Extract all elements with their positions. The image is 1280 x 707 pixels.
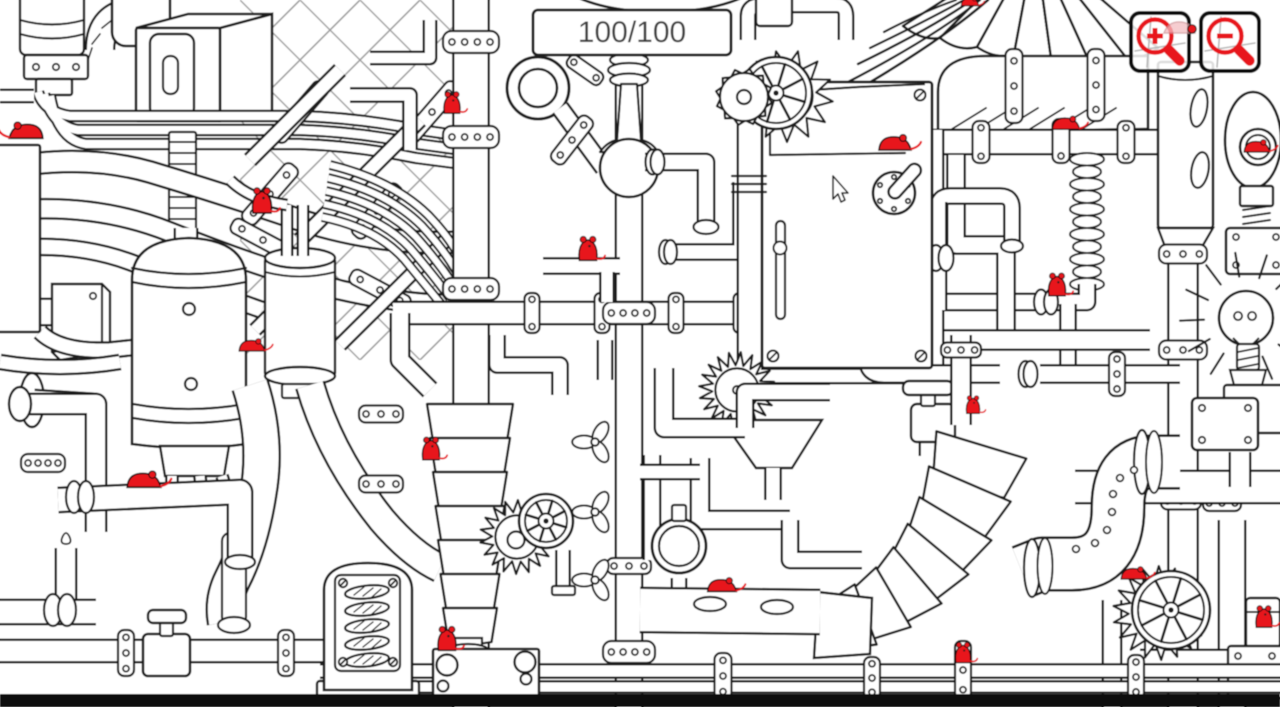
svg-text:100/100: 100/100 bbox=[578, 16, 686, 49]
